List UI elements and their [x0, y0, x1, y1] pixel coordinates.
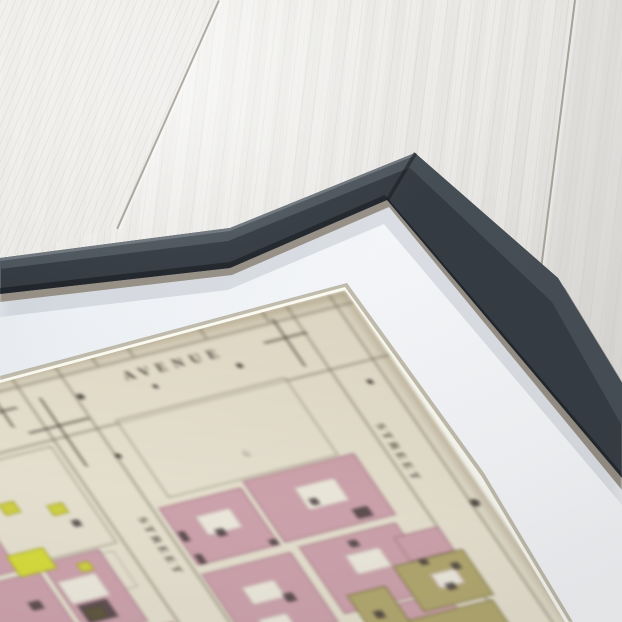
map-building — [347, 586, 426, 622]
map-hydrant-dot — [467, 498, 481, 508]
map-building — [57, 550, 138, 600]
map-annotation-mark — [352, 506, 374, 520]
map-building — [41, 549, 148, 622]
map-annotation-mark — [450, 562, 462, 571]
map-annotation-mark — [373, 610, 387, 620]
map-annotation-mark — [214, 528, 228, 538]
map-courtyard — [293, 477, 349, 510]
map-building — [84, 605, 109, 621]
map-label-avenue: AVENUE — [107, 343, 242, 387]
map-lot-tick — [261, 311, 270, 323]
map-survey-cross — [271, 318, 306, 366]
map-survey-cross — [263, 331, 307, 344]
map-survey-cross — [0, 406, 18, 415]
map-courtyard — [57, 572, 111, 605]
map-building — [299, 522, 442, 614]
photo-framed-map-on-wood: AVENUESTREETSTREET6 — [0, 0, 622, 622]
map-building — [0, 446, 117, 575]
map-annotation-mark — [177, 531, 191, 543]
map-hydrant-dot — [75, 393, 86, 400]
map-annotation-mark — [28, 600, 45, 611]
map-hydrant-dot — [366, 379, 375, 385]
map-annotation-mark — [347, 539, 360, 548]
map-building — [0, 501, 21, 516]
map-hydrant-dot — [114, 453, 123, 459]
map-courtyard — [344, 547, 392, 576]
map-street-line — [9, 375, 335, 622]
map-street-line — [52, 364, 378, 622]
map-annotation-mark — [77, 598, 118, 622]
map-building — [115, 377, 338, 498]
map-courtyard — [430, 568, 465, 589]
map-courtyard — [241, 579, 286, 605]
map-survey-cross — [39, 398, 88, 467]
map-annotation-mark — [418, 558, 430, 566]
map-label-street-1: STREET — [136, 516, 201, 598]
map-building — [0, 571, 83, 622]
map-building — [378, 591, 468, 622]
map-courtyard — [257, 612, 297, 622]
map-label-lot-number: 6 — [240, 448, 253, 459]
map-building — [201, 552, 338, 622]
map-hydrant-dot — [151, 383, 159, 388]
map-annotation-mark — [282, 592, 297, 603]
map-street-line — [0, 354, 390, 542]
map-annotation-mark — [268, 538, 280, 546]
map-building — [6, 547, 57, 578]
map-survey-cross — [28, 417, 90, 434]
map-building — [76, 561, 95, 573]
map-label-street-2: STREET — [374, 422, 439, 504]
map-building — [0, 498, 19, 593]
map-survey-cross — [0, 400, 15, 428]
map-annotation-mark — [308, 497, 320, 506]
map-annotation-mark — [194, 553, 208, 565]
map-building — [407, 599, 525, 622]
map-courtyard — [195, 508, 243, 537]
map-building — [393, 549, 494, 613]
map-hydrant-dot — [235, 362, 244, 368]
map-annotation-mark — [445, 582, 458, 591]
map-building — [47, 502, 70, 517]
map-building — [393, 526, 454, 562]
map-building — [159, 487, 281, 565]
map-building — [242, 453, 396, 543]
map-annotation-mark — [70, 519, 82, 528]
